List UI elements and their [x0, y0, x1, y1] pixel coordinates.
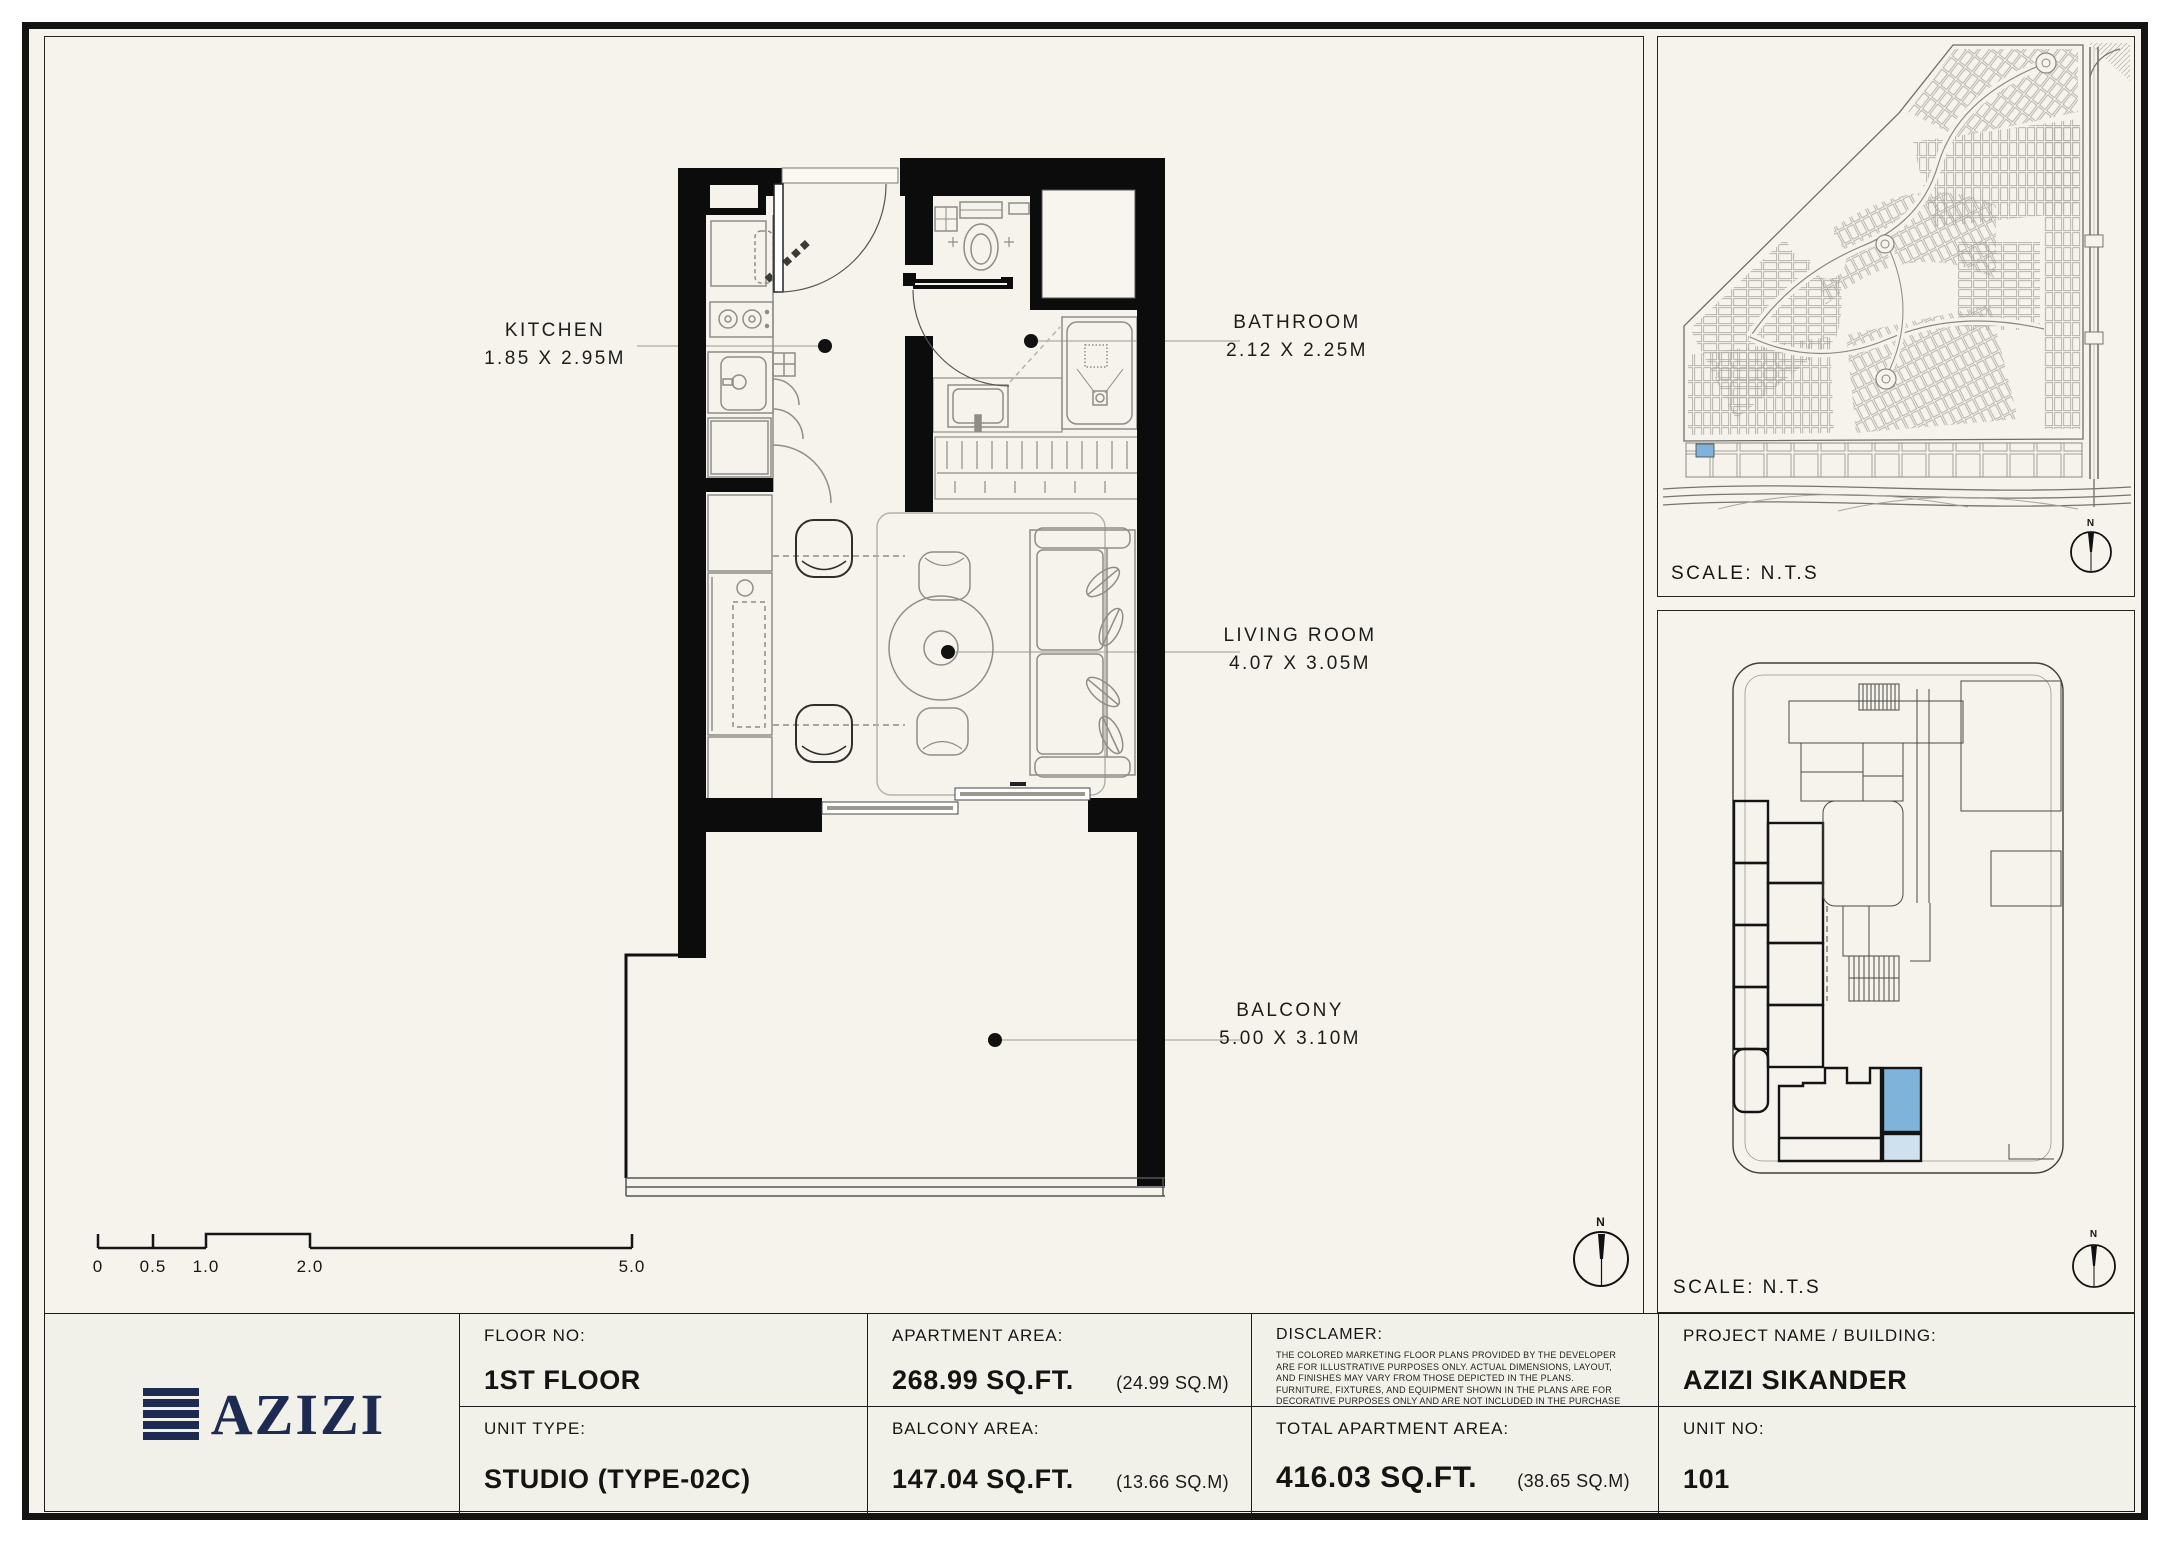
- apartment-area-label: APARTMENT AREA:: [892, 1326, 1251, 1346]
- apartment-area-value: 268.99 SQ.FT.: [892, 1365, 1074, 1396]
- right-highway: [2085, 47, 2120, 507]
- kitchen-fixtures: [708, 215, 831, 503]
- disclaimer-label: DISCLAMER:: [1276, 1326, 1658, 1344]
- shaft: [1042, 190, 1135, 298]
- plan-north-letter: N: [1596, 1215, 1606, 1229]
- total-area-label: TOTAL APARTMENT AREA:: [1276, 1419, 1658, 1439]
- project-cell: PROJECT NAME / BUILDING: AZIZI SIKANDER: [1658, 1314, 2136, 1406]
- key-plan-scale-note: SCALE: N.T.S: [1673, 1277, 1821, 1299]
- scale-tick-5: 5.0: [619, 1257, 646, 1277]
- total-area-cell: TOTAL APARTMENT AREA: 416.03 SQ.FT. (38.…: [1251, 1406, 1658, 1513]
- disclaimer-cell: DISCLAMER: THE COLORED MARKETING FLOOR P…: [1251, 1314, 1658, 1406]
- living-room-label: LIVING ROOM 4.07 X 3.05M: [1190, 622, 1410, 678]
- unit-type-value: STUDIO (TYPE-02C): [484, 1464, 751, 1495]
- highlighted-unit-balcony: [1883, 1134, 1921, 1161]
- kitchen-dims: 1.85 X 2.95M: [445, 345, 665, 373]
- bathroom-dims: 2.12 X 2.25M: [1187, 337, 1407, 365]
- scale-tick-0: 0: [93, 1257, 103, 1277]
- balcony-dims: 5.00 X 3.10M: [1180, 1025, 1400, 1053]
- living-room-furniture: [877, 513, 1135, 795]
- balcony-outline: [626, 955, 1165, 1196]
- bottom-lot-row: [1686, 443, 2082, 477]
- balcony-area-cell: BALCONY AREA: 147.04 SQ.FT. (13.66 SQ.M): [867, 1406, 1251, 1513]
- balcony-label: BALCONY 5.00 X 3.10M: [1180, 997, 1400, 1053]
- north-compass-icon: [1574, 1232, 1628, 1286]
- site-map-drawing: [1658, 37, 2133, 595]
- site-map-north-letter: N: [2087, 518, 2095, 529]
- project-value: AZIZI SIKANDER: [1683, 1365, 1907, 1396]
- floor-no-value: 1ST FLOOR: [484, 1365, 641, 1396]
- balcony-area-label: BALCONY AREA:: [892, 1419, 1251, 1439]
- highlighted-site-lot: [1696, 444, 1714, 457]
- wall-niche: [710, 185, 758, 208]
- azizi-logo: AZIZI: [143, 1386, 385, 1444]
- walls: [678, 158, 1165, 1186]
- bathroom-label: BATHROOM 2.12 X 2.25M: [1187, 309, 1407, 365]
- site-map-panel: SCALE: N.T.S N: [1657, 36, 2135, 597]
- unit-type-label: UNIT TYPE:: [484, 1419, 867, 1439]
- living-room-dims: 4.07 X 3.05M: [1190, 650, 1410, 678]
- living-room-name: LIVING ROOM: [1190, 622, 1410, 650]
- console-cabinet: [708, 495, 905, 810]
- unit-stack: [1734, 801, 1823, 1112]
- highlighted-unit: [1883, 1068, 1921, 1132]
- building-core: [1789, 681, 2061, 1159]
- total-area-metric: (38.65 SQ.M): [1517, 1471, 1630, 1492]
- logo-text: AZIZI: [211, 1386, 385, 1444]
- unit-no-label: UNIT NO:: [1683, 1419, 2136, 1439]
- scale-tick-2: 2.0: [297, 1257, 324, 1277]
- key-plan-north-compass-icon: [2073, 1245, 2115, 1287]
- key-plan-drawing: [1658, 611, 2133, 1311]
- project-label: PROJECT NAME / BUILDING:: [1683, 1326, 2136, 1346]
- site-map-north-compass-icon: [2071, 532, 2111, 572]
- disclaimer-text: THE COLORED MARKETING FLOOR PLANS PROVID…: [1276, 1350, 1628, 1406]
- floor-no-cell: FLOOR NO: 1ST FLOOR: [459, 1314, 867, 1406]
- title-block: AZIZI FLOOR NO: 1ST FLOOR APARTMENT AREA…: [44, 1313, 2135, 1512]
- balcony-area-value: 147.04 SQ.FT.: [892, 1464, 1074, 1495]
- kitchen-name: KITCHEN: [445, 317, 665, 345]
- floor-no-label: FLOOR NO:: [484, 1326, 867, 1346]
- sliding-door: [822, 782, 1090, 814]
- bottom-unit-cluster: [1779, 1068, 1881, 1161]
- doors: [774, 168, 1009, 386]
- bathroom-name: BATHROOM: [1187, 309, 1407, 337]
- balcony-name: BALCONY: [1180, 997, 1400, 1025]
- logo-bars-icon: [143, 1388, 199, 1442]
- total-area-value: 416.03 SQ.FT.: [1276, 1461, 1477, 1495]
- apartment-area-metric: (24.99 SQ.M): [1116, 1373, 1229, 1394]
- balcony-area-metric: (13.66 SQ.M): [1116, 1472, 1229, 1493]
- kitchen-label: KITCHEN 1.85 X 2.95M: [445, 317, 665, 373]
- unit-no-cell: UNIT NO: 101: [1658, 1406, 2136, 1513]
- scale-tick-05: 0.5: [140, 1257, 167, 1277]
- logo-cell: AZIZI: [45, 1314, 459, 1513]
- floor-plan-panel: KITCHEN 1.85 X 2.95M BATHROOM 2.12 X 2.2…: [44, 36, 1644, 1314]
- hatch-corner: [2088, 43, 2130, 81]
- apartment-area-cell: APARTMENT AREA: 268.99 SQ.FT. (24.99 SQ.…: [867, 1314, 1251, 1406]
- site-map-scale-note: SCALE: N.T.S: [1671, 563, 1819, 585]
- bottom-freeway: [1663, 486, 2131, 511]
- unit-no-value: 101: [1683, 1464, 1730, 1495]
- drawing-sheet: KITCHEN 1.85 X 2.95M BATHROOM 2.12 X 2.2…: [22, 22, 2148, 1520]
- scale-tick-1: 1.0: [193, 1257, 220, 1277]
- key-plan-north-letter: N: [2090, 1229, 2098, 1240]
- key-plan-panel: SCALE: N.T.S N: [1657, 610, 2135, 1313]
- closet: [935, 437, 1140, 499]
- scale-bar: [98, 1234, 632, 1248]
- unit-type-cell: UNIT TYPE: STUDIO (TYPE-02C): [459, 1406, 867, 1513]
